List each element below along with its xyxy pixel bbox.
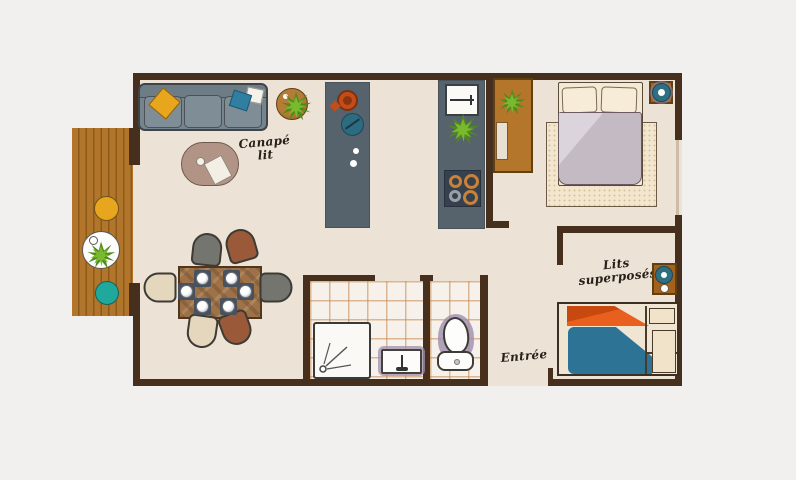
counter-plant-icon [446,112,480,146]
bunkroom-stool-center [661,272,667,278]
wall-bottom-left [133,379,488,386]
washbasin [381,349,422,374]
burner-icon [449,175,462,188]
island-knob [353,148,359,154]
stove [444,170,481,207]
bed-pillow [601,86,638,113]
wardrobe-plant-icon [498,88,526,116]
wall-bedroom-bottom [557,226,675,233]
burner-icon [464,174,479,189]
wall-left-lower [133,283,140,386]
double-bed [558,82,643,186]
duvet-fold [559,113,603,165]
wall-entrance-jamb [548,368,553,379]
sink-faucet-handle [470,95,472,105]
plate-icon [222,300,235,313]
orange-pot-inner [343,96,352,105]
bunk-bed [557,302,679,376]
bed-duvet [558,112,642,185]
wall-wc-right [480,275,488,379]
floor-plan-canvas: Canapé lit Lits s [0,0,796,480]
wall-bunkroom-stub [557,226,563,265]
dining-chair-gray [260,273,293,303]
toilet-flush-button [454,359,460,365]
wall-kitchen-bedroom-divider [486,80,493,228]
burner-icon [449,190,461,202]
burner-icon [463,190,478,205]
dining-chair-cream [144,273,177,303]
terrace-door-opening [133,165,140,283]
bedroom-window-line [676,140,679,215]
plate-icon [180,285,193,298]
placemat [194,298,211,315]
terrace-plant-icon [86,240,116,270]
wall-top [133,73,682,80]
entrance-door-opening [488,379,548,386]
bunk-bottom-blue [568,327,652,374]
plate-icon [225,272,238,285]
sofa-cushion [184,95,222,128]
bed-pillow [562,86,598,113]
shower-head-icon [317,335,357,375]
island-knob [350,160,357,167]
bunkroom-small-dot [660,284,669,293]
plate-icon [239,285,252,298]
shower [313,322,371,379]
toilet-tank [437,351,474,371]
wall-hallway-stub [486,221,509,228]
bunk-ladder-bottom [652,330,676,373]
bunk-ladder-top [649,308,675,324]
washbasin-faucet-base [396,367,408,371]
terrace-stool-yellow [94,196,119,221]
nightstand-stool-center [658,89,665,96]
wall-right-upper [675,80,682,140]
bunk-top-orange [567,306,649,326]
placemat [220,298,237,315]
wall-bottom-right [548,379,682,386]
terrace-stool-teal [95,281,119,305]
placemat [237,283,254,300]
placemat [178,283,195,300]
side-table-plant-icon [280,90,312,122]
bunk-frame-vline [645,306,647,374]
plate-icon [196,300,209,313]
placemat [194,270,211,287]
wardrobe-panel [496,122,508,160]
plate-icon [196,272,209,285]
wall-bathroom-left [303,275,310,379]
